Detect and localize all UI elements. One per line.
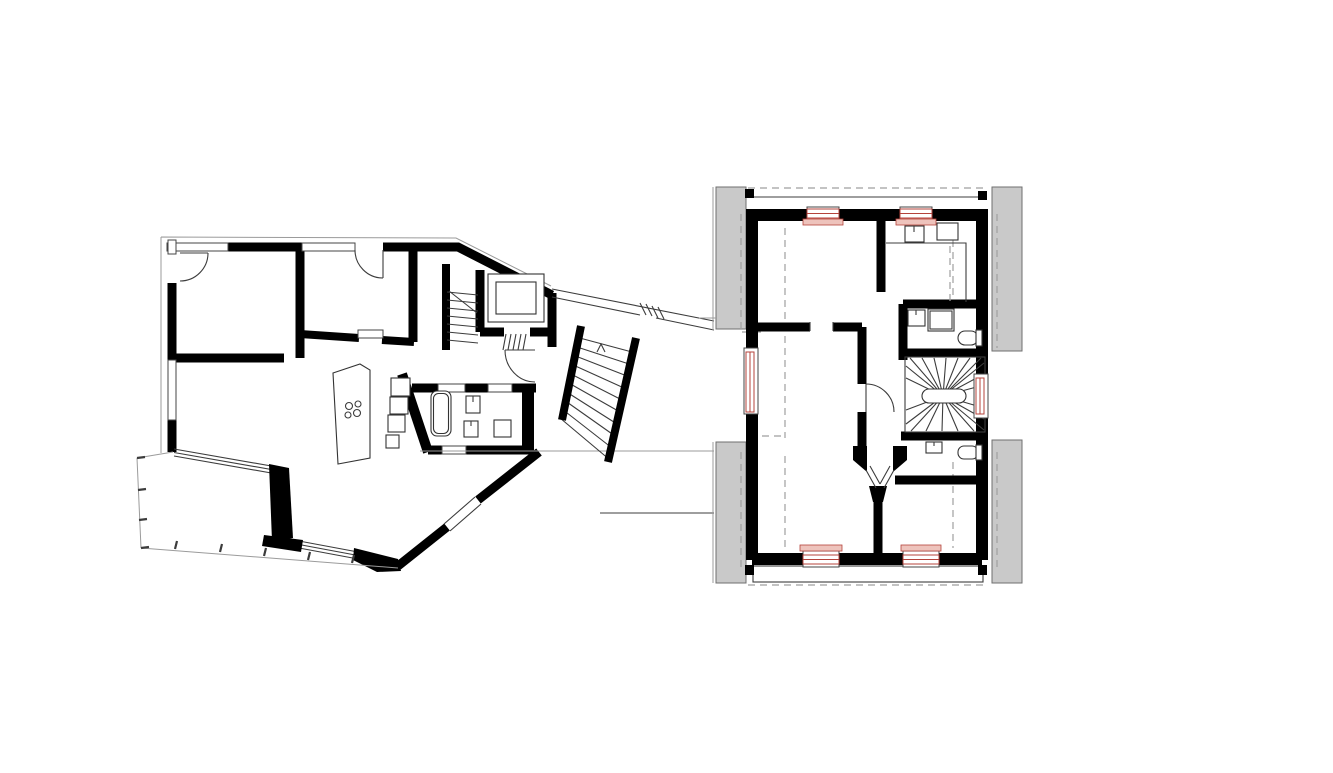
facade-pillar	[269, 464, 293, 541]
window-bath-3	[442, 446, 466, 454]
toilet	[464, 421, 478, 437]
bedroom2-door	[355, 250, 383, 278]
corner-notch-nw	[745, 189, 754, 198]
bedroom2-bottom-wall	[300, 334, 414, 342]
toilet-upper-tank	[976, 330, 982, 346]
annex-southeast-wall	[398, 452, 539, 566]
gable-outer-line	[699, 187, 716, 583]
new-window-east	[974, 374, 988, 418]
corner-notch-se	[978, 565, 987, 575]
split-level-stair	[447, 291, 478, 343]
new-window-top-1	[803, 207, 843, 225]
corner-notch-ne	[978, 191, 987, 200]
bedroom1-door	[180, 253, 208, 281]
window-southeast	[444, 497, 481, 531]
corridor-upper-inner	[552, 297, 714, 330]
stair-wall-right	[608, 338, 636, 462]
hall-door	[866, 384, 894, 412]
toilet-lower-bowl	[958, 446, 978, 459]
toilet-lower-tank	[976, 445, 982, 460]
shower	[494, 420, 511, 437]
new-window-west	[744, 348, 758, 414]
lift-shaft	[488, 274, 544, 322]
chimney-bay	[853, 446, 907, 502]
floor-plan-canvas	[0, 0, 1333, 773]
kitchenette	[886, 223, 966, 302]
new-window-top-2	[896, 207, 936, 225]
window-left-top	[168, 240, 176, 254]
kitchen-appliance	[937, 223, 958, 240]
link-stair	[560, 326, 636, 462]
window-bedroom2-gap	[358, 330, 383, 338]
bathroom-upper	[908, 309, 982, 346]
door-jambs-room-nw	[810, 322, 833, 331]
shower-upper	[928, 309, 954, 331]
winder-stair	[905, 357, 985, 432]
annex-building	[137, 237, 552, 572]
main-house	[699, 187, 1022, 585]
corner-notch-sw	[745, 565, 754, 575]
new-window-bottom-1	[800, 545, 842, 567]
stair-direction-arrow	[597, 344, 605, 352]
living-room-door	[505, 350, 535, 382]
roof-outline-dashed	[741, 188, 997, 585]
bathroom-sink	[466, 396, 480, 413]
window-bath-2	[488, 384, 512, 392]
window-left-mid	[168, 360, 176, 420]
bathtub	[431, 391, 451, 436]
facade-pillar-foot	[262, 535, 303, 552]
kitchen-tall-cabinets	[386, 378, 410, 448]
south-corner-wall	[353, 548, 401, 572]
gable-wall-left-upper	[716, 187, 746, 329]
corridor-window-hatch	[640, 303, 664, 319]
window-top-2	[302, 243, 355, 251]
connecting-link	[420, 289, 714, 513]
bathroom-lower	[926, 442, 982, 460]
corridor-upper-edge	[552, 289, 714, 321]
plinth-bottom	[753, 566, 983, 582]
new-window-bottom-2	[901, 545, 941, 567]
toilet-upper-bowl	[958, 331, 978, 345]
winder-stair-handrail	[922, 389, 966, 403]
lift-step-hatch	[503, 334, 526, 350]
kitchen-island	[333, 364, 370, 464]
